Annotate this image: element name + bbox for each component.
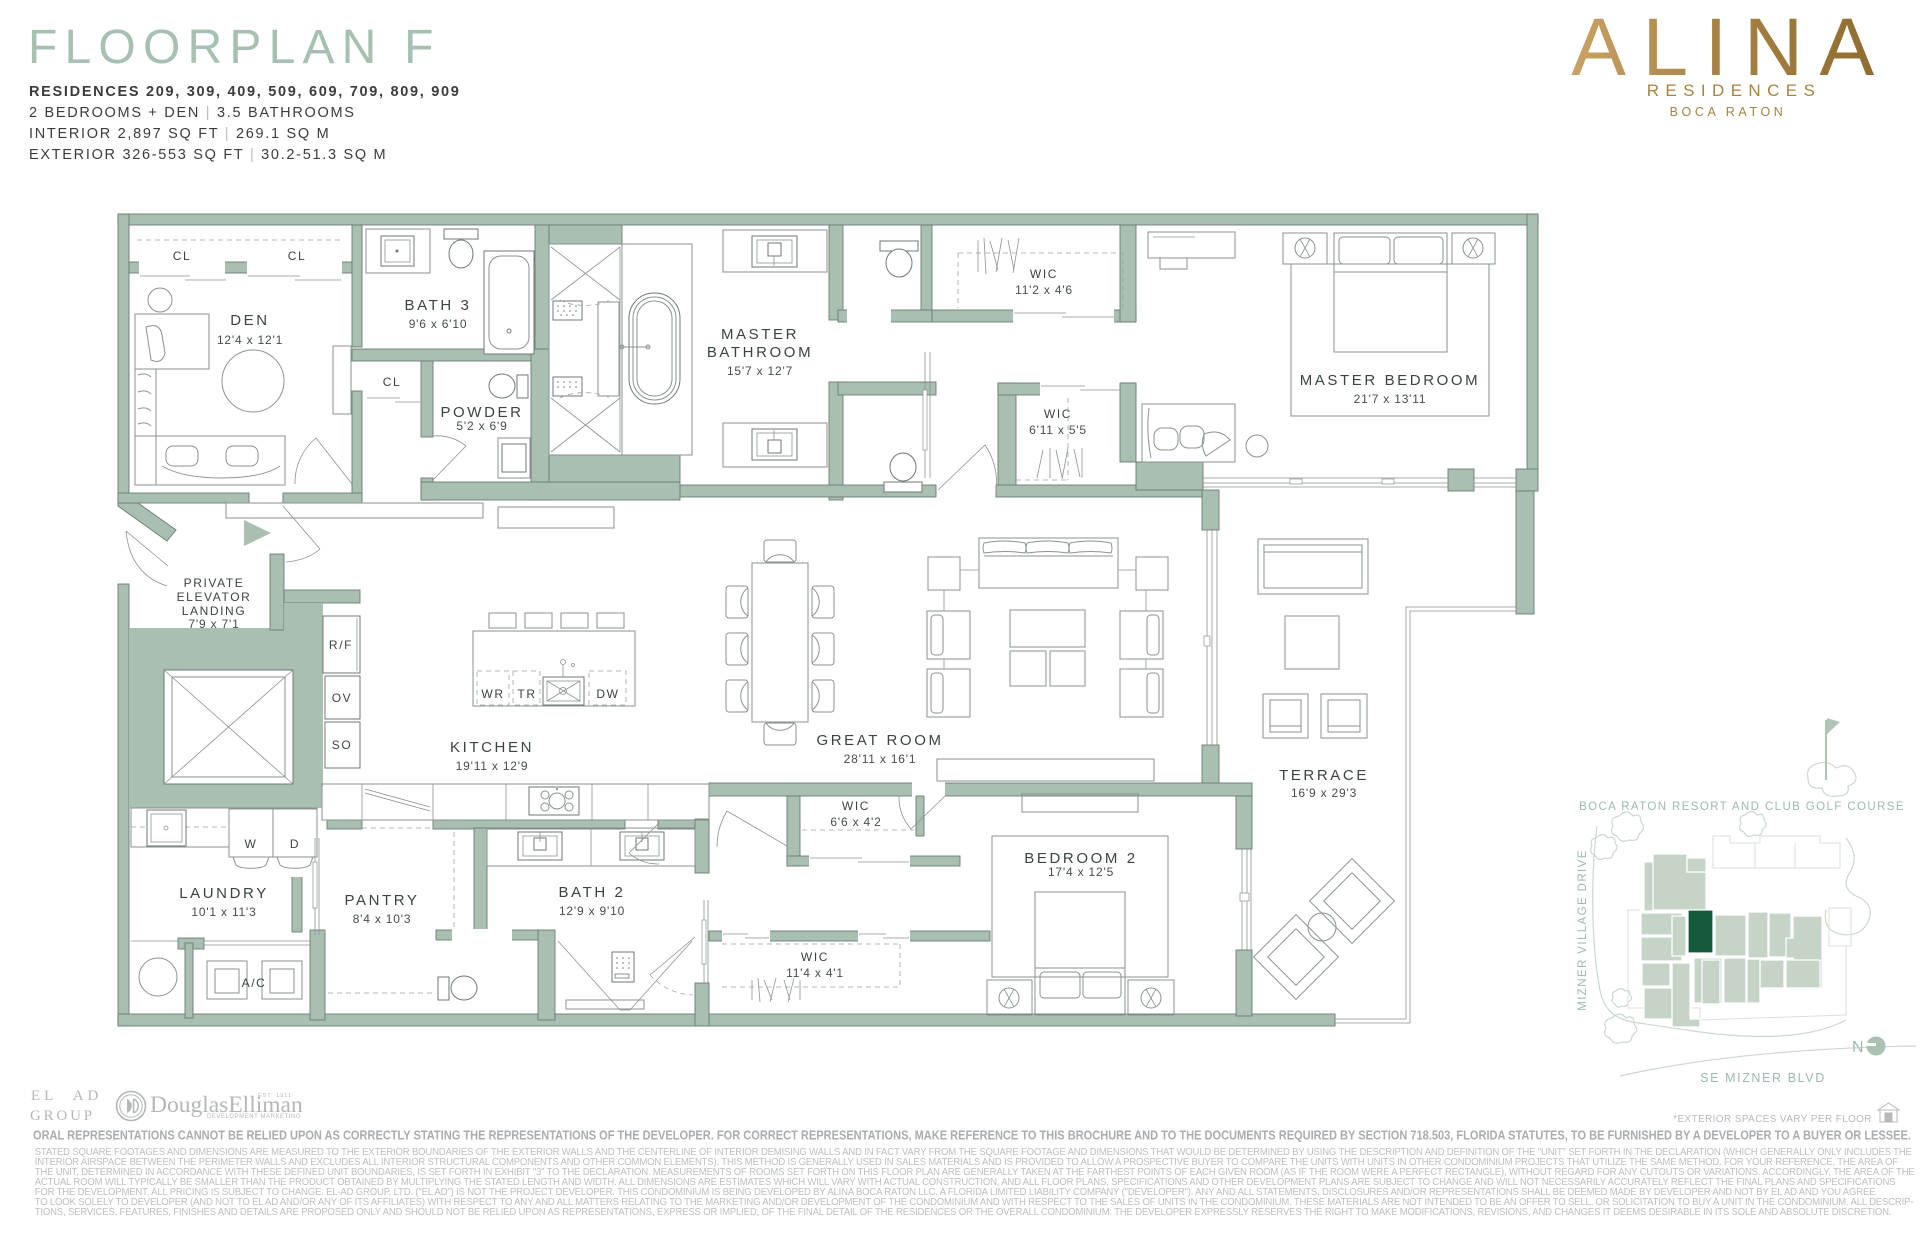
svg-text:DW: DW	[596, 687, 619, 701]
svg-text:6'6 x 4'2: 6'6 x 4'2	[830, 815, 881, 829]
svg-text:RESIDENCES 209, 309, 409, 509,: RESIDENCES 209, 309, 409, 509, 609, 709,…	[29, 84, 461, 100]
svg-text:10'1 x 11'3: 10'1 x 11'3	[191, 905, 256, 919]
svg-text:WIC: WIC	[842, 799, 870, 813]
svg-text:GROUP: GROUP	[30, 1108, 95, 1124]
svg-text:BATH 3: BATH 3	[404, 297, 471, 314]
svg-text:12'9 x 9'10: 12'9 x 9'10	[559, 904, 625, 918]
svg-text:CL: CL	[288, 249, 307, 263]
svg-text:CL: CL	[383, 375, 402, 389]
svg-text:*EXTERIOR SPACES VARY PER FLOO: *EXTERIOR SPACES VARY PER FLOOR	[1673, 1114, 1872, 1125]
svg-text:W: W	[245, 837, 258, 851]
svg-text:12'4 x 12'1: 12'4 x 12'1	[217, 333, 283, 347]
svg-text:BATH 2: BATH 2	[558, 884, 625, 901]
svg-text:CL: CL	[173, 249, 192, 263]
svg-text:11'2 x 4'6: 11'2 x 4'6	[1015, 283, 1073, 297]
svg-text:INTERIOR 2,897 SQ FT | 269.1 S: INTERIOR 2,897 SQ FT | 269.1 SQ M	[29, 126, 330, 142]
svg-text:SE MIZNER BLVD: SE MIZNER BLVD	[1700, 1071, 1826, 1085]
svg-text:WIC: WIC	[801, 950, 829, 964]
svg-text:TR: TR	[517, 687, 536, 701]
svg-text:MASTER: MASTER	[721, 326, 799, 343]
svg-text:FLOORPLAN F: FLOORPLAN F	[28, 21, 441, 74]
svg-text:16'9 x 29'3: 16'9 x 29'3	[1291, 786, 1357, 800]
svg-text:D: D	[290, 837, 300, 851]
svg-text:EL AD: EL AD	[31, 1088, 102, 1104]
svg-text:WR: WR	[481, 687, 504, 701]
svg-text:15'7 x 12'7: 15'7 x 12'7	[727, 364, 793, 378]
svg-text:A/C: A/C	[242, 976, 267, 990]
svg-text:OV: OV	[332, 691, 353, 705]
svg-text:DEN: DEN	[230, 312, 269, 329]
svg-text:17'4 x 12'5: 17'4 x 12'5	[1048, 865, 1114, 879]
svg-text:EXTERIOR 326-553 SQ FT | 30.2-: EXTERIOR 326-553 SQ FT | 30.2-51.3 SQ M	[29, 147, 387, 163]
svg-text:9'6 x 6'10: 9'6 x 6'10	[409, 317, 468, 331]
svg-text:ALINA: ALINA	[1571, 2, 1891, 93]
svg-text:DEVELOPMENT MARKETING: DEVELOPMENT MARKETING	[207, 1114, 301, 1120]
svg-text:MASTER BEDROOM: MASTER BEDROOM	[1300, 372, 1481, 389]
svg-text:2 BEDROOMS + DEN | 3.5 BATHROO: 2 BEDROOMS + DEN | 3.5 BATHROOMS	[29, 105, 356, 121]
svg-text:ORAL REPRESENTATIONS CANNOT BE: ORAL REPRESENTATIONS CANNOT BE RELIED UP…	[33, 1128, 1911, 1143]
svg-text:EST. 1911: EST. 1911	[258, 1093, 292, 1099]
svg-text:PANTRY: PANTRY	[344, 892, 419, 909]
svg-text:ELEVATOR: ELEVATOR	[177, 590, 252, 604]
svg-text:LANDING: LANDING	[182, 604, 247, 618]
svg-text:LAUNDRY: LAUNDRY	[179, 885, 269, 902]
svg-text:28'11 x 16'1: 28'11 x 16'1	[844, 752, 917, 766]
svg-text:KITCHEN: KITCHEN	[450, 739, 534, 756]
svg-text:TIONS, SERVICES, FEATURES, FIN: TIONS, SERVICES, FEATURES, FINISHES AND …	[35, 1207, 1892, 1218]
svg-text:PRIVATE: PRIVATE	[184, 576, 245, 590]
svg-text:TERRACE: TERRACE	[1279, 767, 1369, 784]
svg-text:WIC: WIC	[1030, 267, 1058, 281]
svg-text:SO: SO	[332, 738, 353, 752]
svg-text:R/F: R/F	[329, 638, 353, 652]
svg-text:21'7 x 13'11: 21'7 x 13'11	[1354, 392, 1427, 406]
svg-text:19'11 x 12'9: 19'11 x 12'9	[456, 759, 529, 773]
svg-text:7'9 x 7'1: 7'9 x 7'1	[188, 617, 239, 631]
svg-text:BATHROOM: BATHROOM	[707, 344, 813, 361]
svg-text:BOCA RATON: BOCA RATON	[1670, 105, 1787, 119]
svg-text:GREAT ROOM: GREAT ROOM	[816, 732, 943, 749]
svg-text:MIZNER VILLAGE DRIVE: MIZNER VILLAGE DRIVE	[1577, 849, 1589, 1011]
svg-text:RESIDENCES: RESIDENCES	[1647, 81, 1822, 100]
svg-text:8'4 x 10'3: 8'4 x 10'3	[353, 912, 412, 926]
svg-text:5'2 x 6'9: 5'2 x 6'9	[456, 419, 507, 433]
svg-text:11'4 x 4'1: 11'4 x 4'1	[786, 966, 844, 980]
svg-text:BOCA RATON RESORT AND CLUB GOL: BOCA RATON RESORT AND CLUB GOLF COURSE	[1579, 801, 1905, 813]
svg-text:N: N	[1852, 1039, 1865, 1056]
svg-text:6'11 x 5'5: 6'11 x 5'5	[1029, 423, 1087, 437]
